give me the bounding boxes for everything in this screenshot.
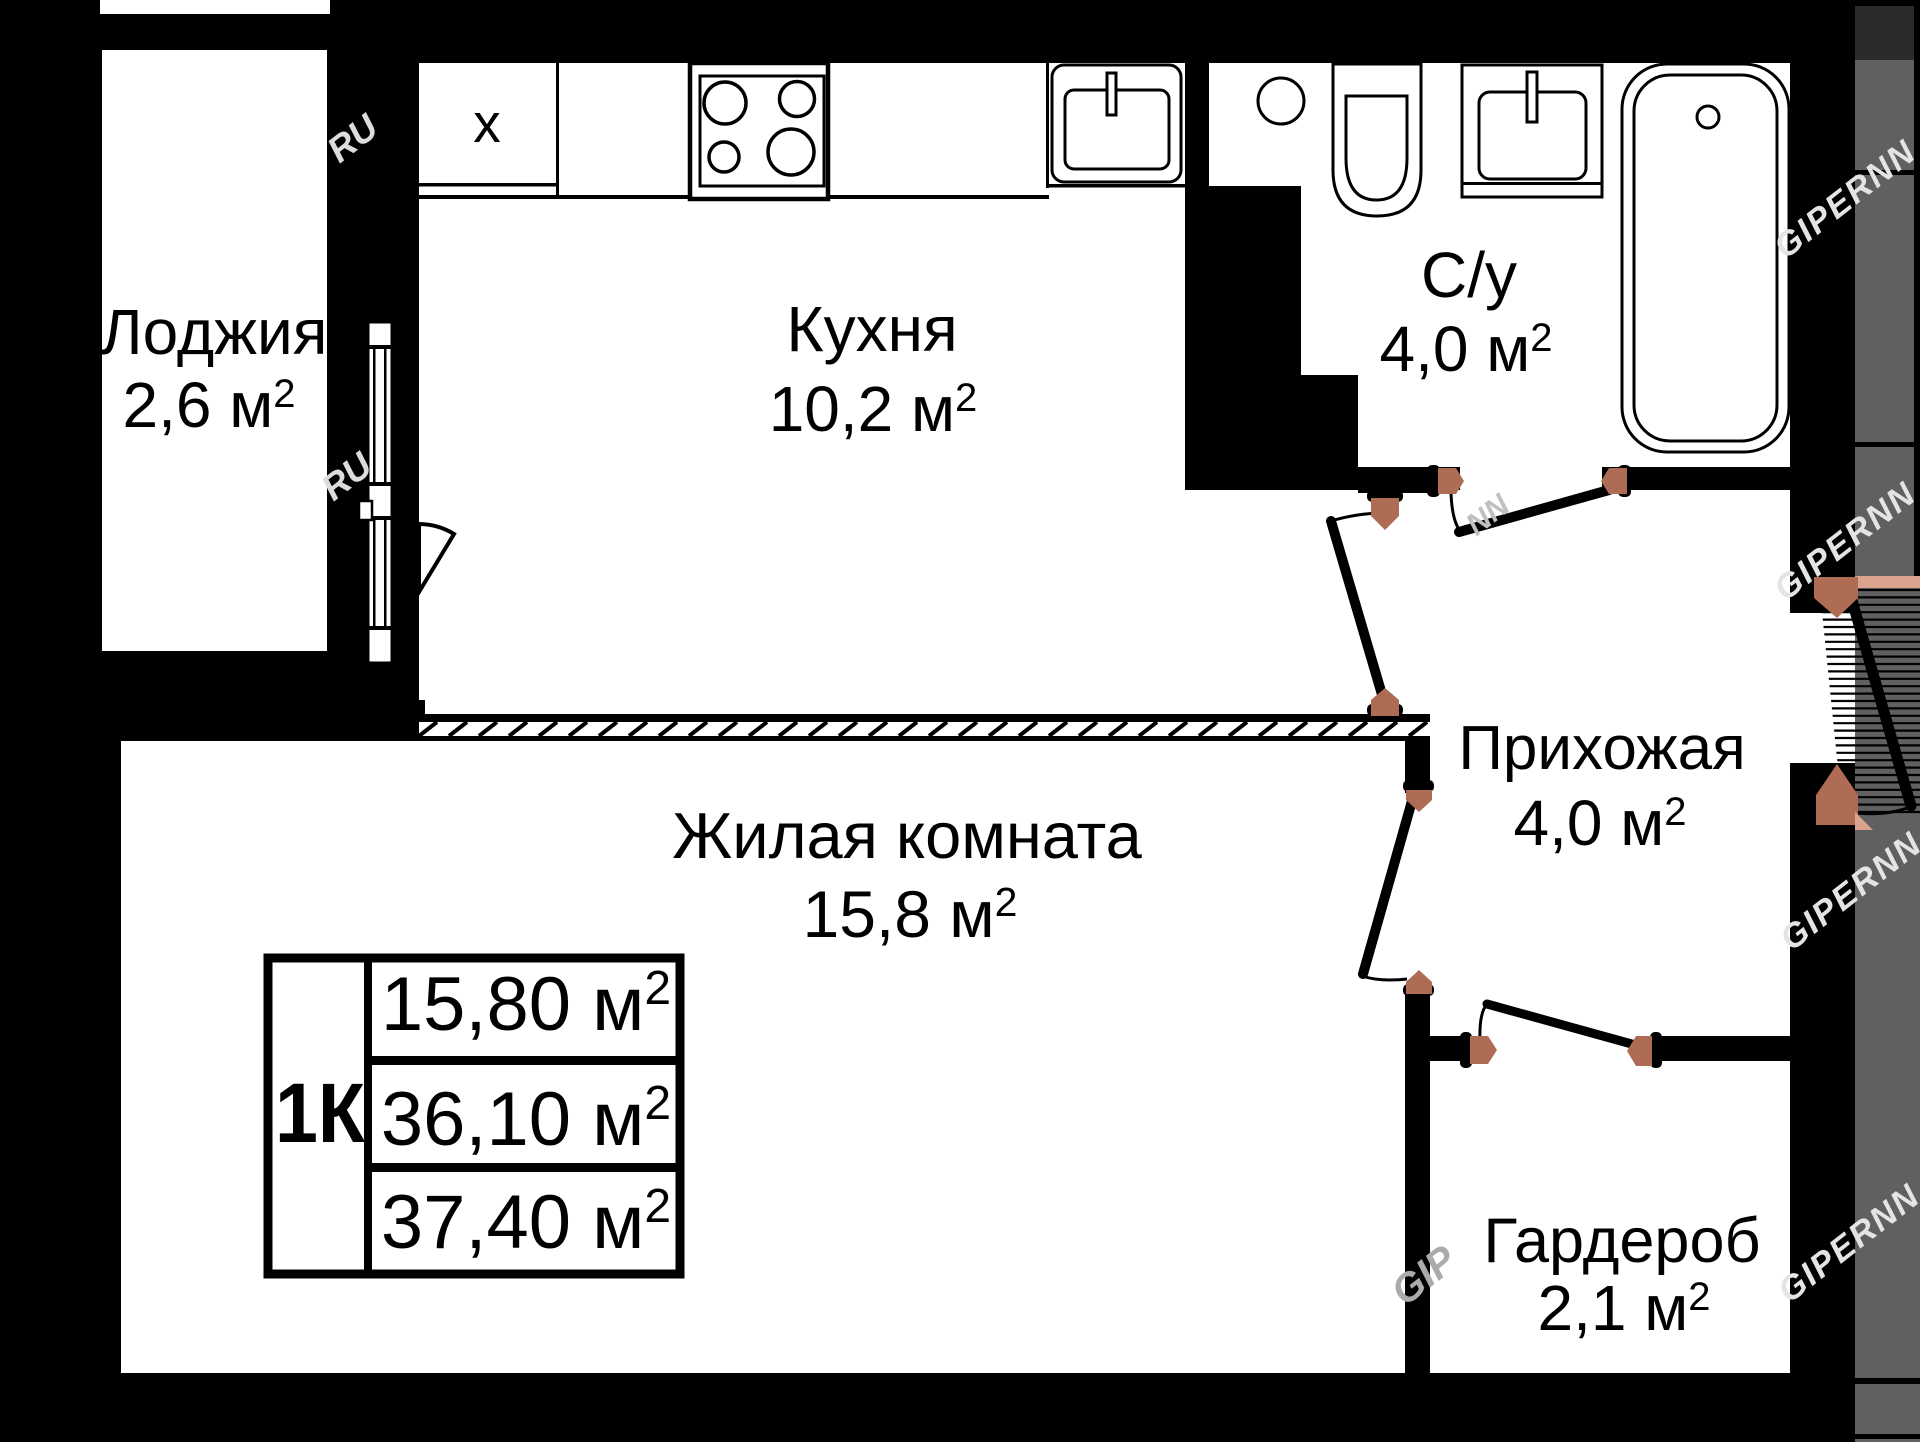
svg-text:С/у: С/у: [1421, 239, 1517, 311]
svg-text:Жилая комната: Жилая комната: [672, 799, 1142, 872]
svg-text:Прихожая: Прихожая: [1458, 714, 1745, 783]
svg-text:Кухня: Кухня: [786, 293, 957, 365]
svg-text:10,2 м2: 10,2 м2: [769, 373, 978, 445]
svg-text:15,80 м2: 15,80 м2: [381, 962, 671, 1047]
svg-text:2,6 м2: 2,6 м2: [123, 369, 296, 441]
svg-text:37,40 м2: 37,40 м2: [381, 1180, 671, 1265]
svg-text:4,0 м2: 4,0 м2: [1514, 787, 1687, 859]
svg-text:15,8 м2: 15,8 м2: [803, 877, 1018, 951]
svg-text:4,0 м2: 4,0 м2: [1380, 313, 1553, 385]
svg-text:2,1 м2: 2,1 м2: [1538, 1272, 1711, 1344]
svg-text:1К: 1К: [275, 1066, 366, 1160]
svg-text:36,10 м2: 36,10 м2: [381, 1077, 671, 1162]
svg-text:Гардероб: Гардероб: [1483, 1206, 1760, 1276]
svg-text:Лоджия: Лоджия: [101, 296, 328, 368]
svg-text:х: х: [473, 92, 501, 154]
